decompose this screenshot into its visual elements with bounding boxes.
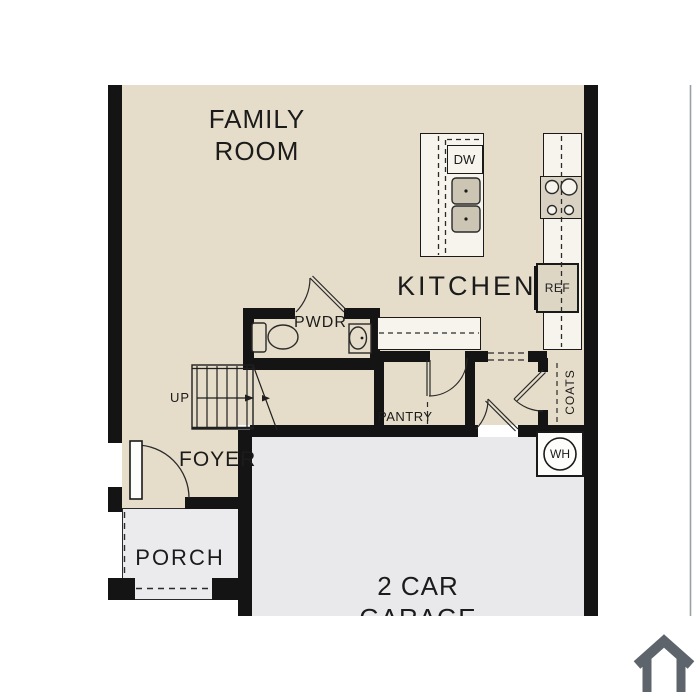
- kitchen-label: KITCHEN: [397, 271, 537, 302]
- wall-foyer-bottom: [185, 497, 238, 509]
- wall-pantry-right: [465, 358, 475, 427]
- porch-label: PORCH: [123, 545, 237, 571]
- garage-area: 2 CAR GARAGE: [252, 437, 584, 616]
- wall-porch-bottom-left: [108, 578, 135, 600]
- water-heater-label: WH: [546, 447, 574, 461]
- garage-label-line1: 2 CAR: [252, 571, 584, 602]
- wall-exterior-right: [584, 85, 598, 616]
- kitchen-counter-bottom: [377, 317, 481, 350]
- wall-exterior-left: [108, 85, 122, 443]
- foyer-label: FOYER: [179, 448, 256, 472]
- coats-label: COATS: [563, 363, 577, 421]
- wall-coats-stub-bottom: [538, 410, 548, 427]
- stove: [540, 176, 582, 219]
- wall-porch-bottom-right: [212, 578, 240, 600]
- refrigerator-label: REF: [538, 281, 577, 295]
- up-label: UP: [170, 390, 190, 405]
- garage-label-line2: GARAGE: [252, 603, 584, 616]
- powder-label: PWDR: [294, 314, 347, 332]
- family-room-label-line2: ROOM: [157, 136, 357, 167]
- dishwasher-label: DW: [448, 152, 481, 167]
- family-room-label-line1: FAMILY: [157, 104, 357, 135]
- pantry-label: PANTRY: [378, 409, 433, 424]
- wall-powder-bottom: [243, 358, 380, 370]
- wall-coats-stub-top: [538, 358, 548, 372]
- house-icon: [637, 641, 691, 692]
- wall-garage-top-left: [250, 425, 478, 437]
- refrigerator-box: REF: [536, 263, 579, 313]
- floor-plan-screenshot: { "palette": { "background": "#ffffff", …: [0, 0, 700, 700]
- kitchen-counter-right: [543, 133, 582, 350]
- dishwasher-box: DW: [447, 145, 483, 174]
- wall-exterior-left-lower: [108, 487, 122, 512]
